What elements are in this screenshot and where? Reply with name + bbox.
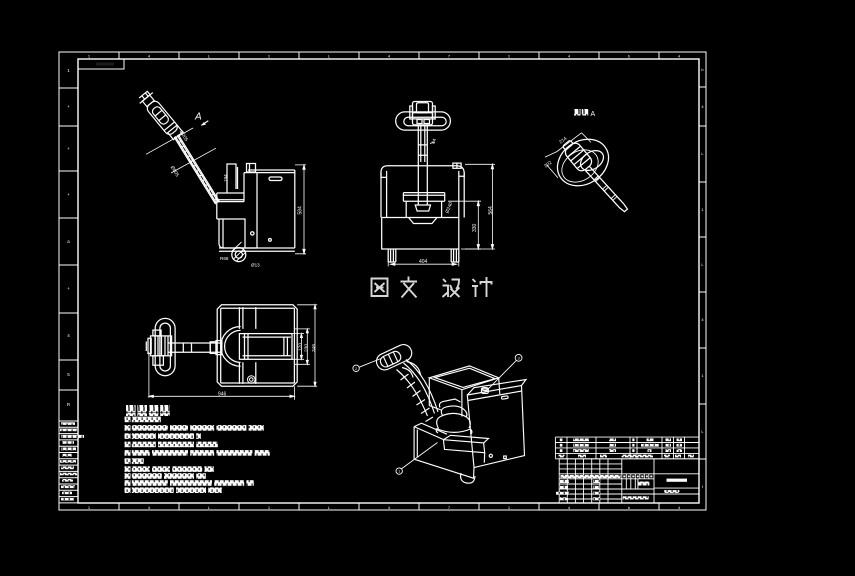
svg-text:+: +: [67, 286, 70, 291]
svg-text:+: +: [67, 192, 70, 197]
svg-text:170: 170: [298, 343, 304, 351]
svg-text:564: 564: [488, 206, 494, 215]
svg-text:194: 194: [223, 174, 228, 182]
svg-text:330: 330: [472, 223, 478, 232]
svg-text:I: I: [702, 484, 703, 489]
svg-text:+: +: [67, 104, 70, 109]
svg-text:Ø13: Ø13: [251, 263, 260, 268]
svg-text:404: 404: [419, 259, 428, 265]
svg-text:A: A: [194, 112, 202, 123]
svg-text:R68: R68: [220, 256, 229, 261]
svg-text:346: 346: [311, 344, 317, 352]
svg-text:946: 946: [218, 391, 227, 397]
svg-text:A: A: [591, 111, 596, 118]
svg-text:584: 584: [298, 206, 304, 215]
svg-text:+: +: [67, 146, 70, 151]
svg-text:230: 230: [303, 344, 309, 352]
